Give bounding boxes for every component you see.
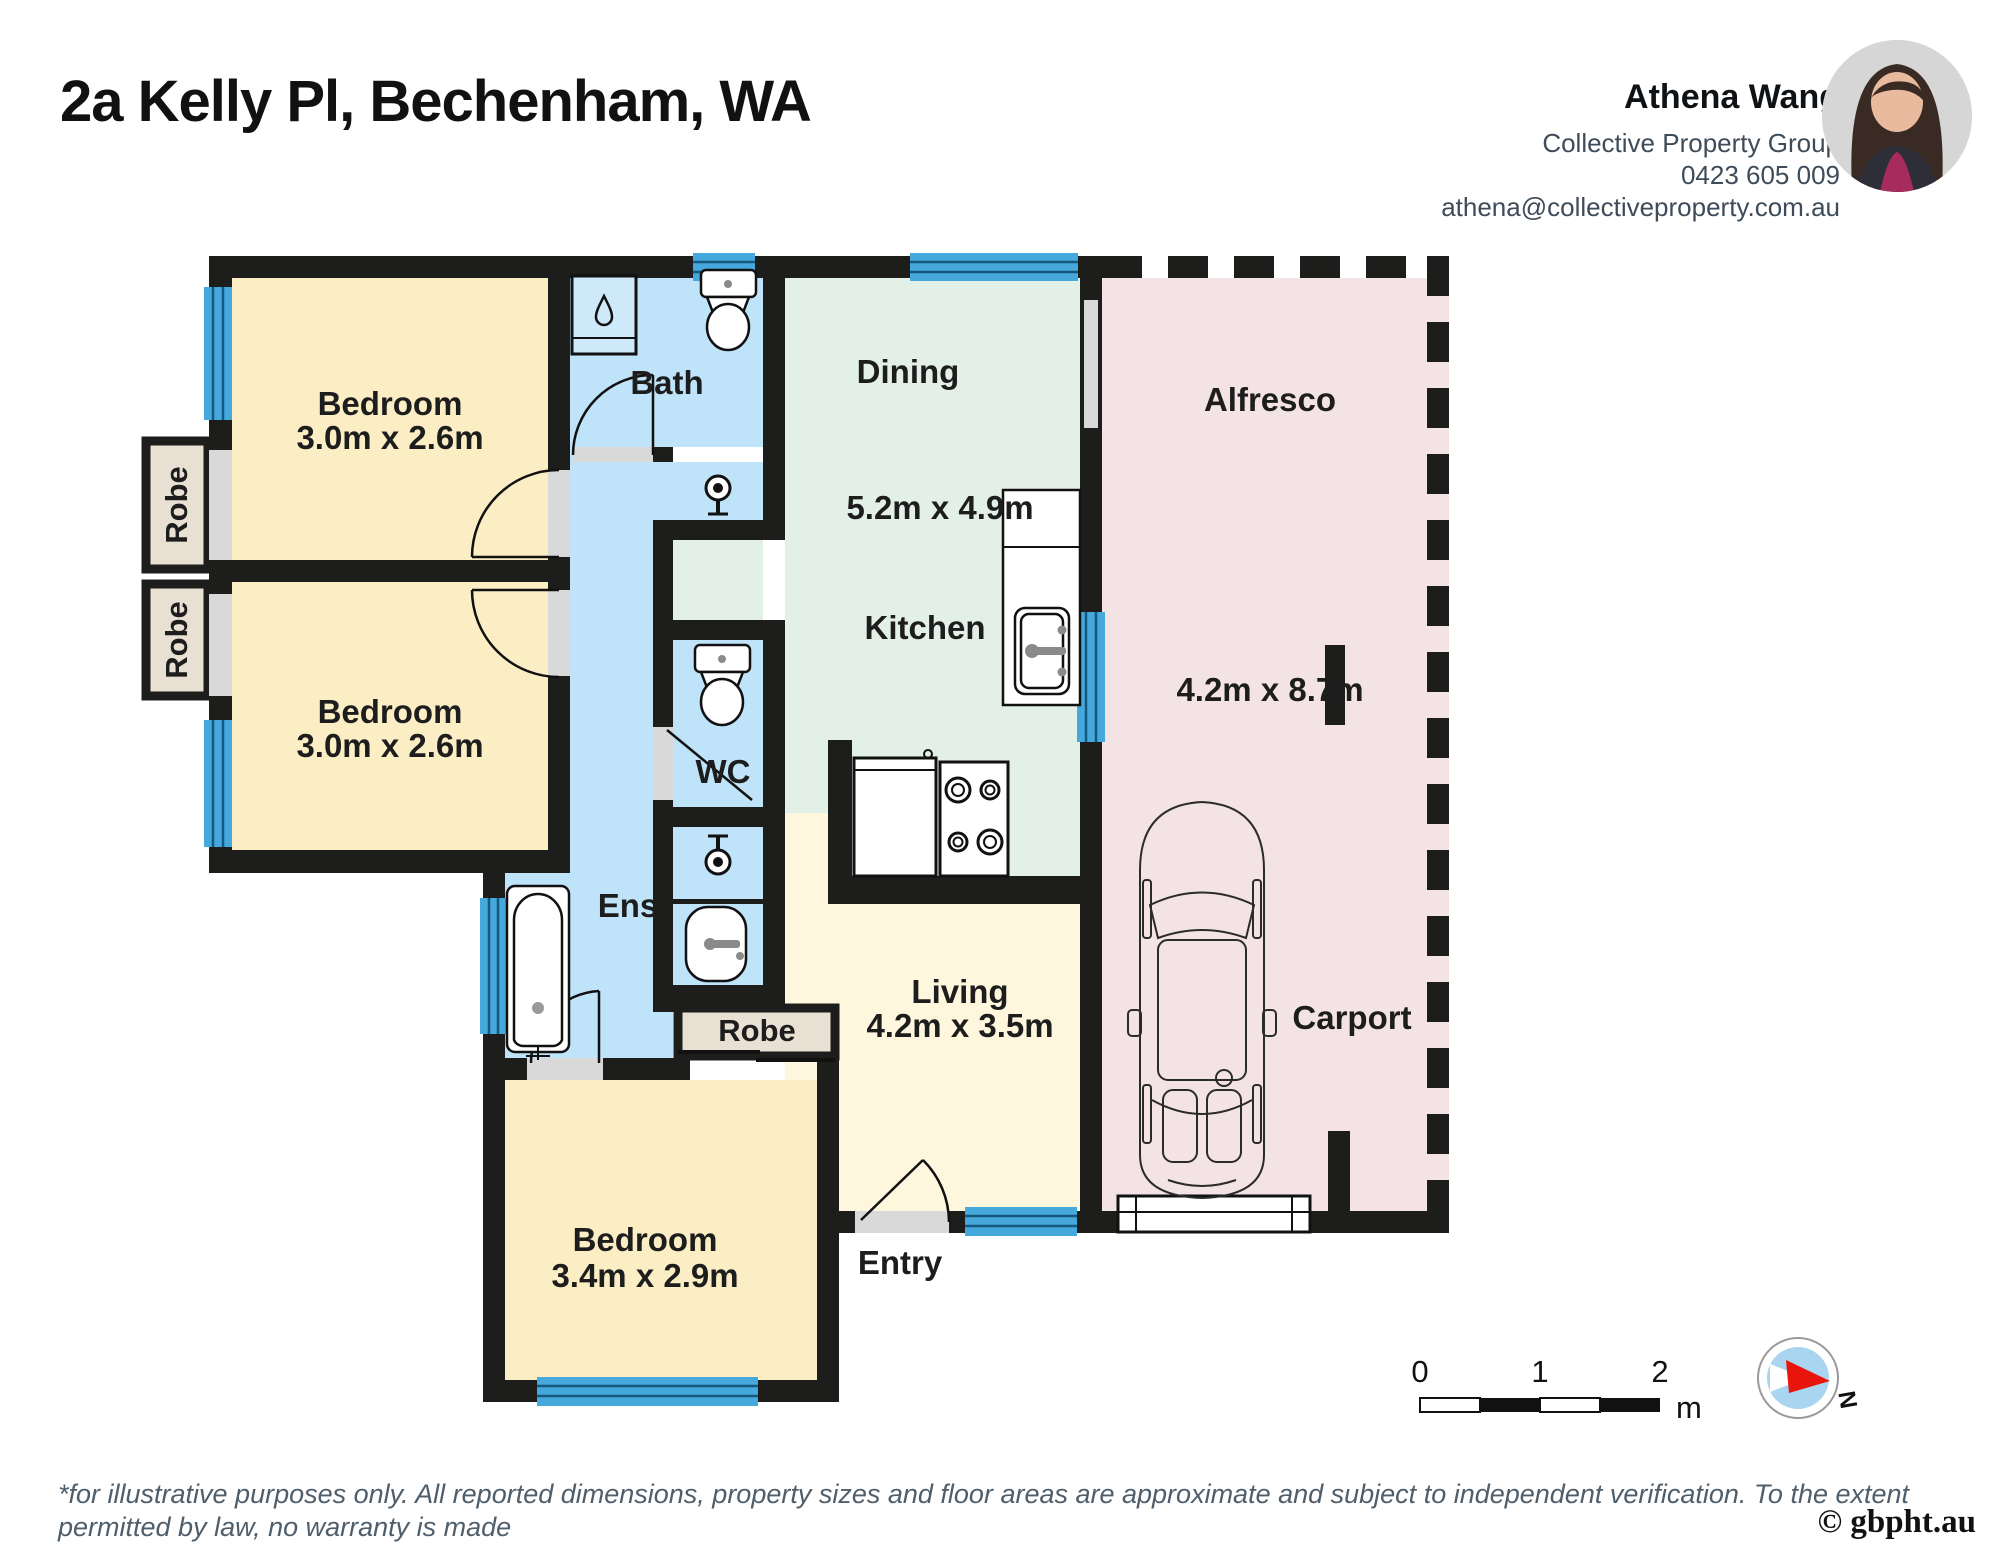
bathtub-icon <box>507 886 569 1060</box>
window-bedroom1 <box>204 287 232 420</box>
robe-1-opening <box>209 450 232 560</box>
scale-bar <box>1420 1398 1660 1412</box>
label-ens: Ens <box>598 887 659 925</box>
kitchen-sink-icon <box>1015 608 1069 694</box>
label-bedroom1-dims: 3.0m x 2.6m <box>296 419 483 457</box>
label-alfresco: Alfresco <box>1204 381 1336 419</box>
agent-block: Athena Wang Collective Property Group 04… <box>1441 78 1840 223</box>
label-dining: Dining <box>857 353 960 391</box>
scale-unit: m <box>1676 1390 1702 1426</box>
label-robe3: Robe <box>718 1013 796 1049</box>
agent-avatar <box>1822 40 1972 192</box>
label-robe1: Robe <box>159 466 195 544</box>
label-wc: WC <box>696 753 751 791</box>
label-bedroom2: Bedroom <box>318 693 463 731</box>
sink-icon <box>686 907 746 981</box>
fridge-icon <box>854 750 936 876</box>
window-bedroom3 <box>537 1377 758 1406</box>
label-living: Living <box>911 973 1008 1011</box>
label-entry: Entry <box>858 1244 942 1282</box>
bedroom3-door-opening <box>527 1058 603 1080</box>
label-bedroom1: Bedroom <box>318 385 463 423</box>
copyright-text: © gbpht.au <box>1817 1504 1976 1541</box>
label-bedroom3: Bedroom <box>573 1221 718 1259</box>
bath-door-opening <box>573 447 653 462</box>
shower-icon <box>572 276 636 354</box>
scale-tick-1: 1 <box>1531 1354 1548 1390</box>
floorplan-svg <box>0 0 2000 1546</box>
carport-post <box>1328 1131 1350 1213</box>
disclaimer-line-1: *for illustrative purposes only. All rep… <box>58 1478 2000 1544</box>
label-kitchen: Kitchen <box>864 609 985 647</box>
stove-icon <box>940 762 1008 876</box>
window-living <box>965 1207 1077 1236</box>
bedroom2-door-opening <box>548 590 570 676</box>
scale-tick-2: 2 <box>1651 1354 1668 1390</box>
label-bath: Bath <box>630 364 703 402</box>
robe-2-opening <box>209 594 232 696</box>
window-dining <box>910 253 1078 281</box>
window-bedroom2 <box>204 720 232 847</box>
compass-icon <box>1758 1338 1838 1418</box>
label-alfresco-dims: 4.2m x 8.7m <box>1176 671 1363 709</box>
wc-door-opening <box>653 727 673 800</box>
label-bedroom2-dims: 3.0m x 2.6m <box>296 727 483 765</box>
label-dining-dims: 5.2m x 4.9m <box>846 489 1033 527</box>
disclaimer-text: *for illustrative purposes only. All rep… <box>58 1478 2000 1546</box>
driveway-strip <box>1118 1196 1310 1232</box>
label-robe2: Robe <box>159 601 195 679</box>
entry-door-opening <box>855 1211 949 1233</box>
scale-tick-0: 0 <box>1411 1354 1428 1390</box>
room-alfresco-carport <box>1102 278 1449 1233</box>
avatar-illustration <box>1822 40 1972 192</box>
label-carport: Carport <box>1292 999 1411 1037</box>
agent-company: Collective Property Group <box>1441 127 1840 159</box>
agent-email: athena@collectiveproperty.com.au <box>1441 191 1840 223</box>
floorplan-page: 2a Kelly Pl, Bechenham, WA Athena Wang C… <box>0 0 2000 1546</box>
window-ensuite <box>480 898 507 1034</box>
page-title: 2a Kelly Pl, Bechenham, WA <box>60 68 811 135</box>
agent-name: Athena Wang <box>1441 78 1840 117</box>
label-living-dims: 4.2m x 3.5m <box>866 1007 1053 1045</box>
dining-pocket <box>673 540 763 620</box>
agent-phone: 0423 605 009 <box>1441 159 1840 191</box>
label-bedroom3-dims: 3.4m x 2.9m <box>551 1257 738 1295</box>
alfresco-slider-opening <box>1084 300 1098 428</box>
bedroom1-door-opening <box>548 470 570 557</box>
